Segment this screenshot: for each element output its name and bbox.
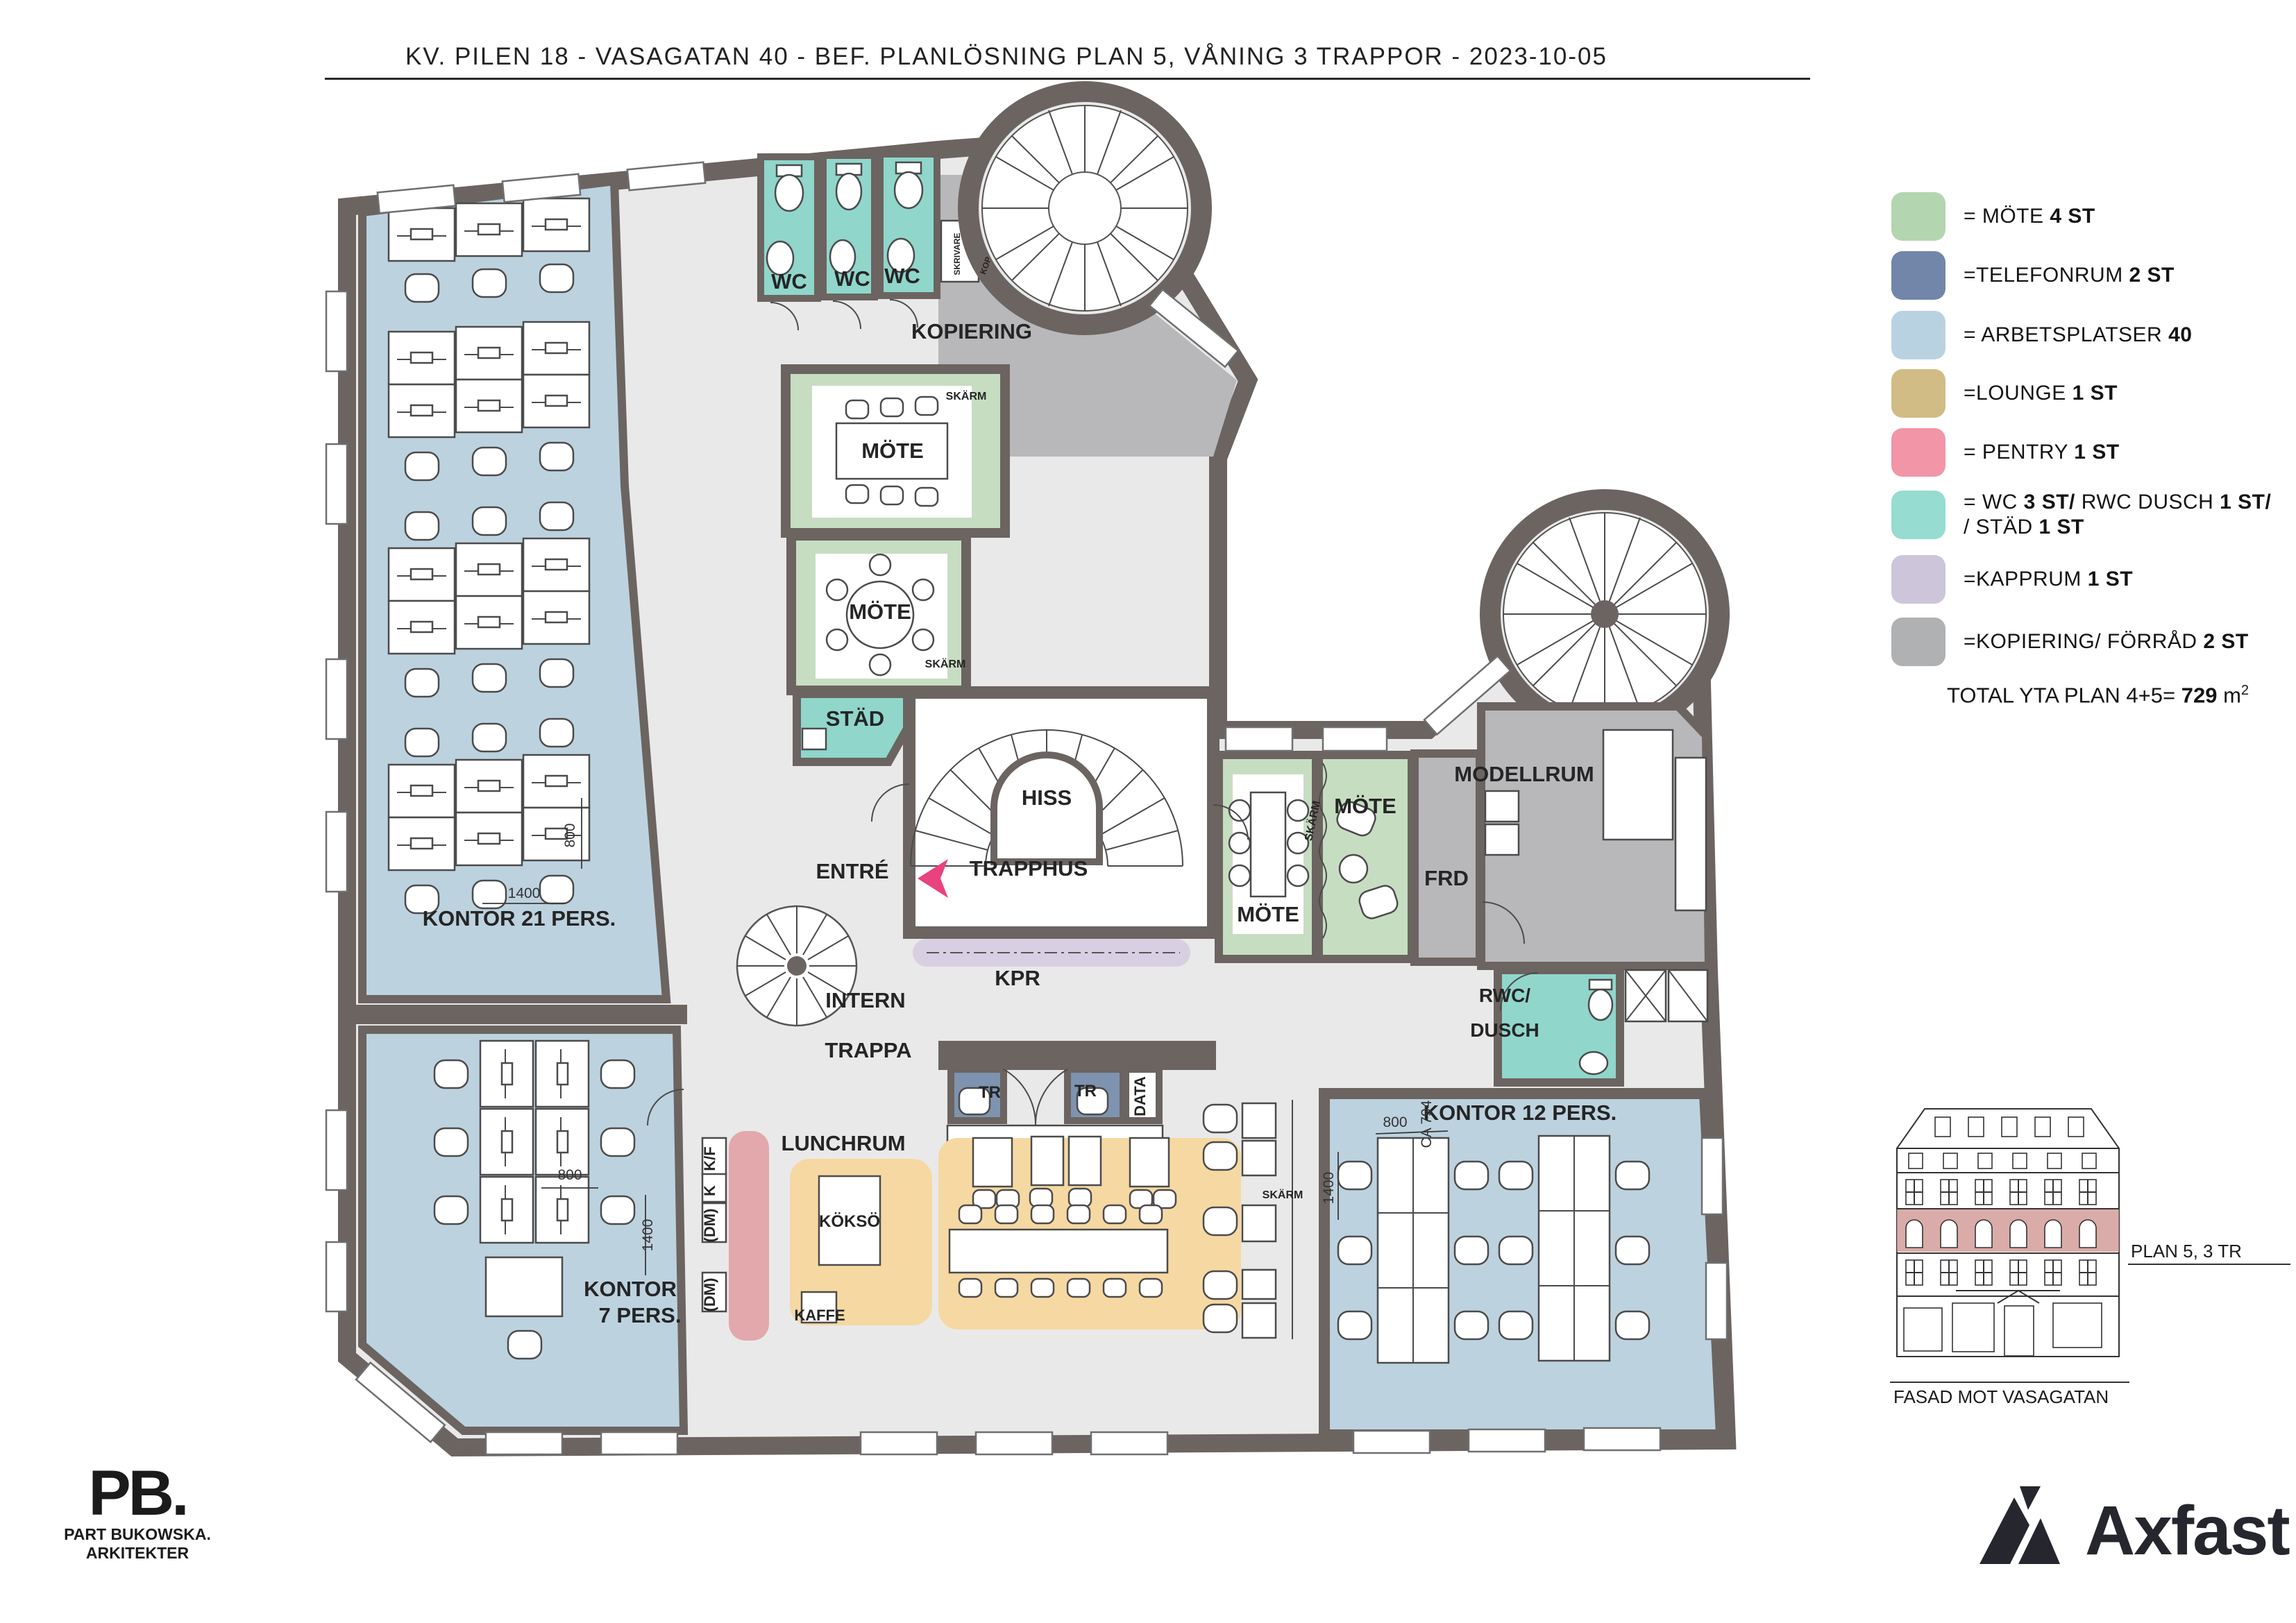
legend-swatch-pentry [1891,428,1945,477]
label-lunchrum: LUNCHRUM [781,1131,905,1155]
label-mote-3: MÖTE [1237,902,1299,926]
pb-logo-mark: PB. [54,1461,221,1525]
label-kontor-12: KONTOR 12 PERS. [1424,1101,1617,1125]
axfast-mark-icon [1980,1486,2071,1565]
total-area: TOTAL YTA PLAN 4+5= 729 m2 [1947,683,2249,708]
wall-divider [351,1005,687,1024]
label-frd: FRD [1424,866,1469,890]
label-kokso: KÖKSÖ [819,1212,880,1231]
facade-drawing: PLAN 5, 3 TR FASAD MOT VASAGATAN [1886,1082,2295,1416]
label-kaffe: KAFFE [794,1307,845,1324]
label-trappa: TRAPPA [825,1038,911,1062]
label-skarm-3: SKÄRM [1263,1189,1303,1201]
wall-tr [938,1041,1216,1070]
label-k: K [701,1185,718,1196]
axfast-logo-name: Axfast [2085,1496,2289,1565]
mote4-table [1340,855,1367,883]
axfast-logo: Axfast [1980,1486,2289,1565]
label-wc-3: WC [884,264,920,288]
label-skarm-2: SKÄRM [925,658,966,670]
legend-item-wc: = WC 3 ST/ RWC DUSCH 1 ST/ / STÄD 1 ST [1891,490,2271,540]
label-wc-2: WC [834,266,870,291]
cafe-tables [973,1137,1176,1208]
label-mote-1: MÖTE [861,439,924,463]
legend-item-mote: = MÖTE 4 ST [1891,192,2095,241]
pb-logo-line2: ARKITEKTER [54,1544,221,1563]
legend-swatch-kapprum [1891,555,1945,604]
spiral-stair-right [1490,500,1719,729]
pb-logo: PB. PART BUKOWSKA. ARKITEKTER [54,1461,221,1563]
room-mote-4 [1319,755,1412,959]
facade-plan-label: PLAN 5, 3 TR [2131,1241,2242,1261]
legend-item-lounge: =LOUNGE 1 ST [1891,369,2118,418]
dim-800-b: 800 [557,1167,582,1183]
stad-sink [802,729,826,749]
storage-closets [1626,970,1707,1021]
label-hiss: HISS [1022,785,1072,810]
label-dm-2: (DM) [701,1278,718,1312]
long-table [949,1230,1167,1273]
legend-swatch-wc [1891,491,1945,539]
label-wc-1: WC [771,269,807,294]
label-kpr: KPR [995,966,1040,990]
dim-ca794: CA 794 [1419,1100,1435,1148]
dim-1400-b: 1400 [640,1219,656,1252]
label-kf: K/F [701,1146,718,1171]
legend-swatch-lounge [1891,369,1945,418]
legend-item-pentry: = PENTRY 1 ST [1891,428,2120,477]
legend-swatch-mote [1891,192,1945,241]
label-kopiering: KOPIERING [911,319,1032,343]
label-skrivare: SKRIVARE [952,232,962,275]
label-tr-2: TR [1074,1082,1097,1101]
label-dm-1: (DM) [701,1209,718,1243]
legend-item-kapprum: =KAPPRUM 1 ST [1891,555,2133,604]
label-trapphus: TRAPPHUS [970,856,1088,881]
legend-item-arbetsplatser: = ARBETSPLATSER 40 [1891,311,2192,359]
label-stad: STÄD [826,706,884,731]
label-entre: ENTRÉ [816,859,888,883]
label-kontor-7-2: 7 PERS. [599,1303,682,1327]
label-skarm-1: SKÄRM [946,390,987,402]
label-rwc-2: DUSCH [1470,1019,1539,1041]
label-data: DATA [1131,1076,1149,1116]
label-tr-1: TR [979,1083,1001,1102]
label-rwc-1: RWC/ [1479,985,1530,1006]
label-mote-2: MÖTE [849,600,911,624]
dim-1400-a: 1400 [508,885,541,901]
mote3-table [1251,792,1285,897]
dim-1400-c: 1400 [1321,1172,1337,1205]
dim-800-a: 800 [562,823,578,847]
legend-swatch-telefonrum [1891,251,1945,300]
legend-item-telefonrum: =TELEFONRUM 2 ST [1891,251,2175,300]
label-kontor-21: KONTOR 21 PERS. [423,906,616,931]
legend-swatch-arbetsplatser [1891,311,1945,359]
spiral-stair-top [968,92,1201,325]
label-intern: INTERN [825,988,905,1012]
dim-800-c: 800 [1383,1114,1407,1130]
legend-swatch-kopiering [1891,618,1945,666]
facade-caption: FASAD MOT VASAGATAN [1893,1386,2109,1407]
label-mote-4: MÖTE [1334,794,1396,818]
legend-item-kopiering: =KOPIERING/ FÖRRÅD 2 ST [1891,618,2249,666]
pb-logo-line1: PART BUKOWSKA. [54,1525,221,1544]
label-modellrum: MODELLRUM [1454,762,1594,786]
label-kontor-7-1: KONTOR [584,1277,677,1301]
